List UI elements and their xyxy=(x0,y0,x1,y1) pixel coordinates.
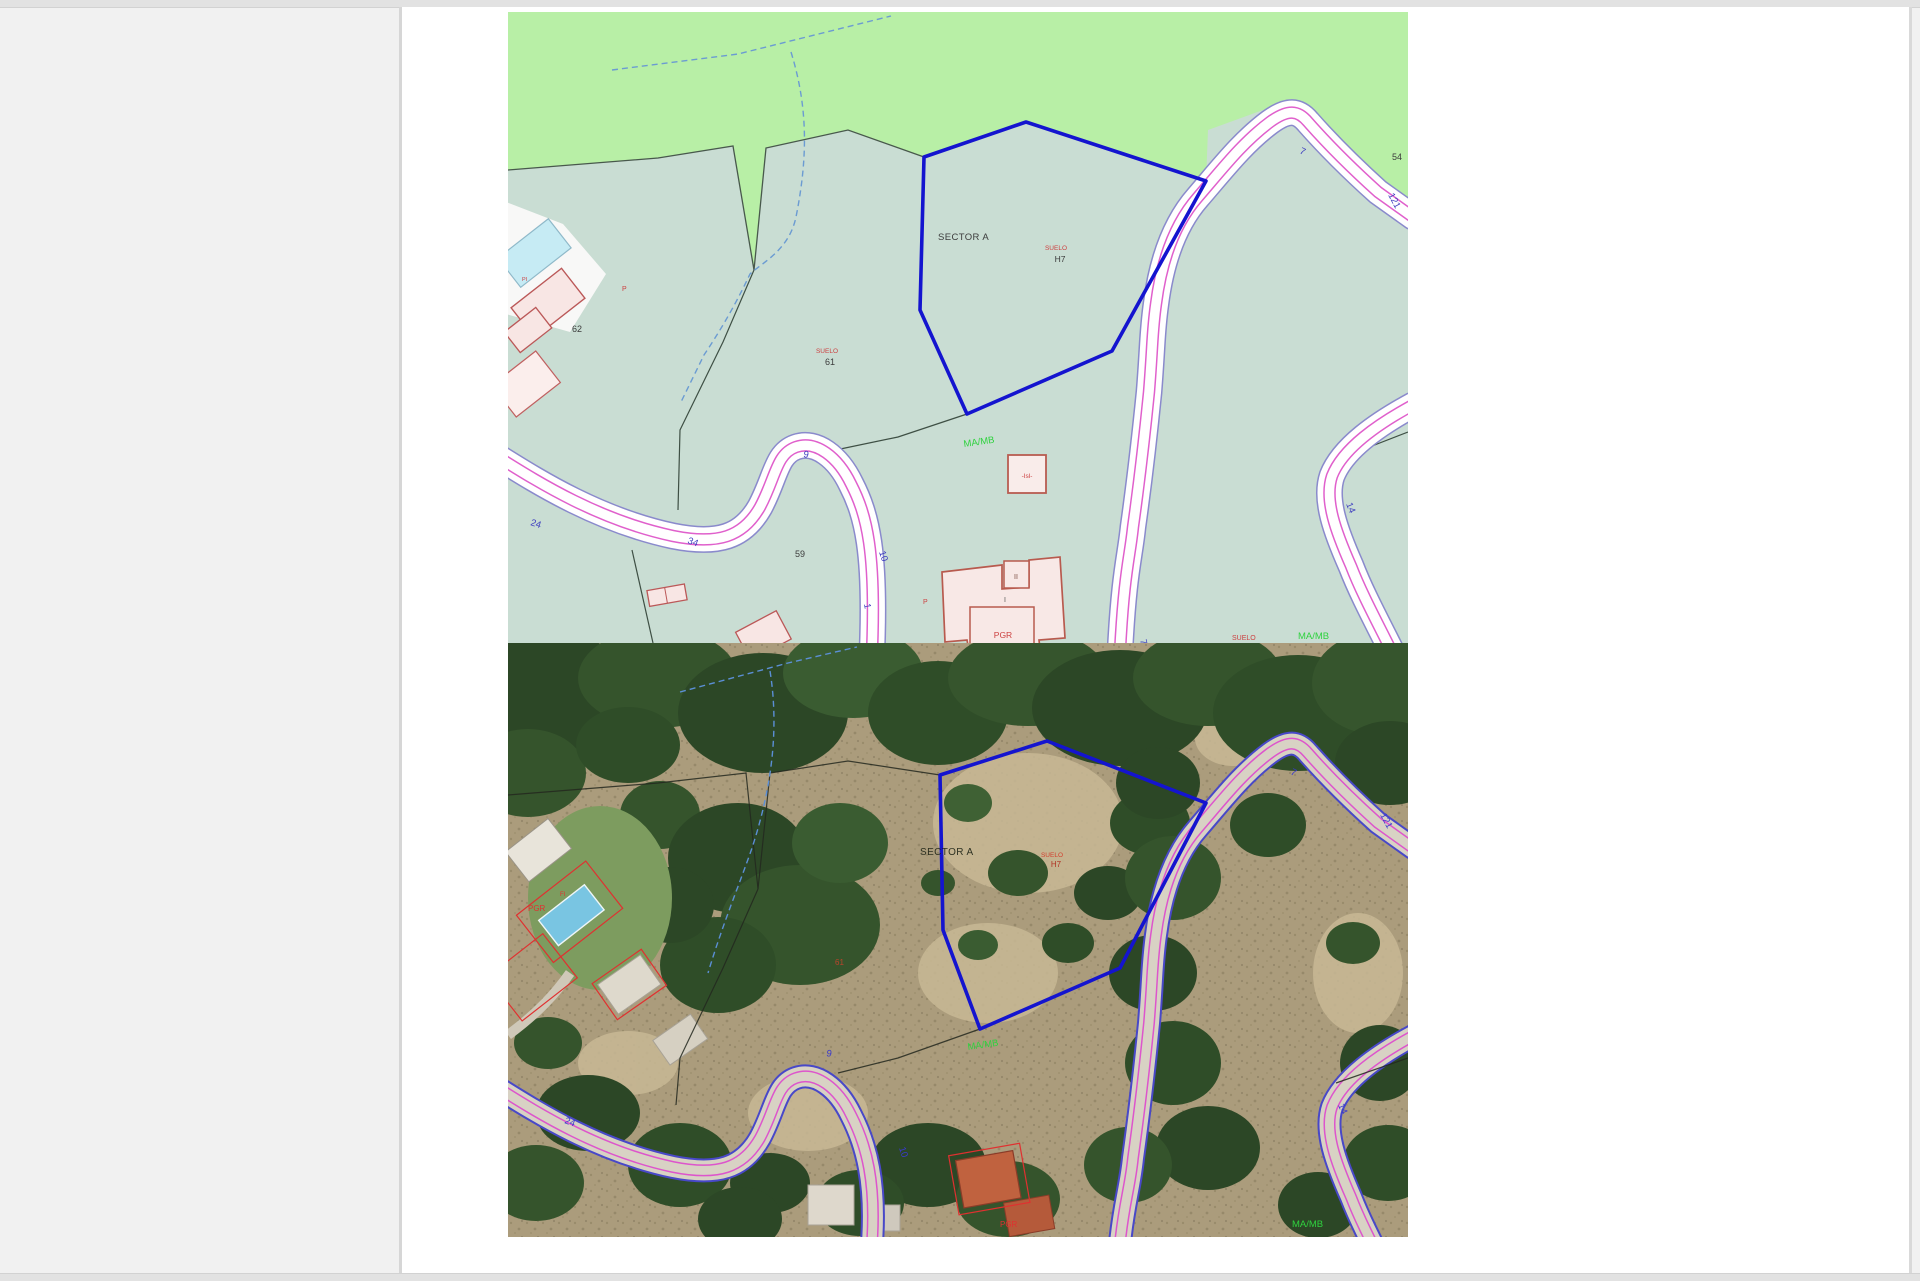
building-large-south: II I PGR xyxy=(942,557,1065,643)
label-p: P xyxy=(622,286,627,293)
label-pgr: PGR xyxy=(994,630,1012,640)
cadastral-map: -Isl- II I PGR SECTOR A SUELO H7 SUELO 6… xyxy=(508,12,1408,643)
label-i: I xyxy=(1004,597,1006,604)
label-pgr-left-aerial: PGR xyxy=(528,904,546,913)
label-suelo-aerial: SUELO xyxy=(1041,852,1063,859)
label-isl: -Isl- xyxy=(1022,473,1033,480)
document-page: -Isl- II I PGR SECTOR A SUELO H7 SUELO 6… xyxy=(399,7,1912,1273)
label-61-aerial: 61 xyxy=(835,958,844,967)
building-isolated-square: -Isl- xyxy=(1008,455,1046,493)
label-p-house: P xyxy=(923,599,928,606)
label-pgr-bottom-aerial: PGR xyxy=(1000,1220,1018,1229)
label-54: 54 xyxy=(1392,152,1402,162)
label-ii: II xyxy=(1014,574,1018,581)
label-fi-aerial: FI xyxy=(560,892,566,898)
label-h7-aerial: H7 xyxy=(1051,860,1062,869)
label-mamb-bottom: MA/MB xyxy=(1298,631,1329,642)
label-suelo-h7: SUELO xyxy=(1045,245,1067,252)
label-suelo-61: SUELO xyxy=(816,348,838,355)
aerial-map: SECTOR A SUELO H7 61 FI PGR MA/MB PGR MA… xyxy=(508,643,1408,1237)
label-sector-a-aerial: SECTOR A xyxy=(920,847,974,858)
label-59: 59 xyxy=(795,549,805,559)
label-pi: PI xyxy=(522,277,528,283)
label-62: 62 xyxy=(572,324,582,334)
label-mamb-bottom-aerial: MA/MB xyxy=(1292,1219,1323,1230)
map-comparison-stack: -Isl- II I PGR SECTOR A SUELO H7 SUELO 6… xyxy=(508,12,1408,1237)
label-sector-a: SECTOR A xyxy=(938,232,989,243)
label-h7: H7 xyxy=(1055,254,1066,264)
label-suelo-bottom: SUELO xyxy=(1232,635,1256,642)
label-61: 61 xyxy=(825,357,835,367)
